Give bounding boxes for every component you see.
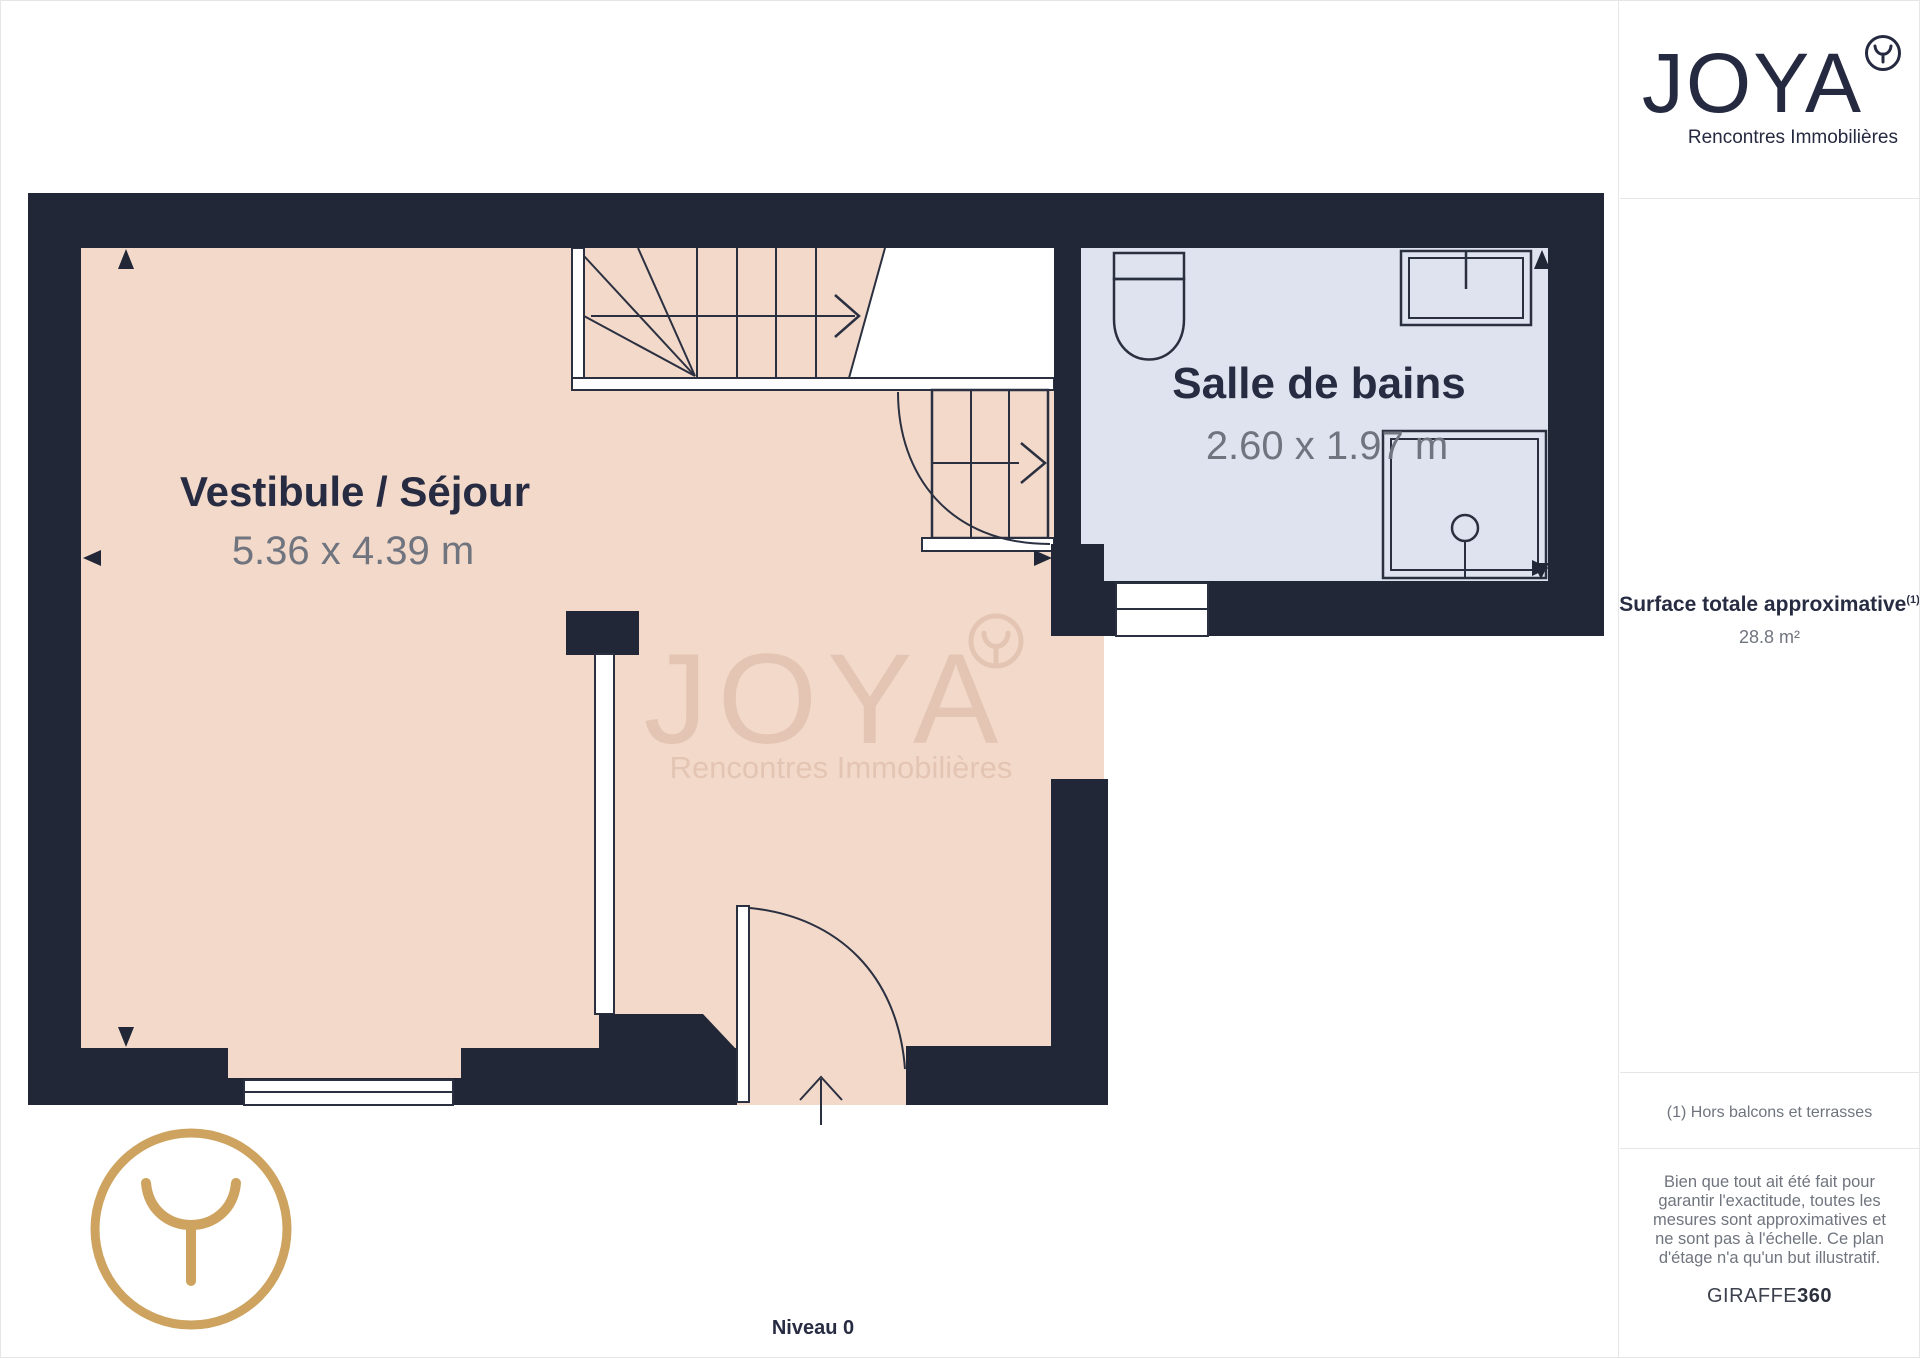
brand-tagline: Rencontres Immobilières: [1619, 127, 1920, 149]
footnote-section: (1) Hors balcons et terrasses: [1619, 1075, 1920, 1151]
window-south: [244, 1080, 453, 1105]
floor-plan: JOYA Rencontres Immobilières: [1, 1, 1618, 1358]
credit-name: GIRAFFE: [1707, 1285, 1797, 1307]
surface-label: Surface totale approximative(1): [1619, 593, 1920, 617]
surface-footnote-ref: (1): [1906, 594, 1919, 606]
divider: [1620, 198, 1920, 199]
door-leaf: [737, 906, 749, 1102]
room-label-vestibule: Vestibule / Séjour: [180, 468, 530, 515]
room-dims-bathroom: 2.60 x 1.97 m: [1206, 424, 1448, 468]
divider: [1620, 1072, 1920, 1073]
brand-wordmark: JOYA: [1642, 41, 1897, 125]
brand-logo: JOYA Rencontres Immobilières: [1619, 41, 1920, 149]
page: JOYA Rencontres Immobilières: [0, 0, 1920, 1358]
disclaimer-text: Bien que tout ait été fait pour garantir…: [1645, 1173, 1894, 1268]
room-label-bathroom: Salle de bains: [1172, 359, 1465, 408]
watermark: JOYA Rencontres Immobilières: [644, 616, 1021, 785]
credit-suffix: 360: [1797, 1285, 1832, 1307]
brand-mark-icon: [1863, 33, 1903, 73]
gold-badge-icon: [95, 1133, 287, 1325]
footnote-text: (1) Hors balcons et terrasses: [1667, 1104, 1872, 1122]
disclaimer-section: Bien que tout ait été fait pour garantir…: [1619, 1173, 1920, 1308]
credit-line: GIRAFFE360: [1645, 1285, 1894, 1308]
surface-value: 28.8 m²: [1619, 627, 1920, 648]
room-dims-vestibule: 5.36 x 4.39 m: [232, 529, 474, 573]
brand-name: JOYA: [1642, 36, 1863, 130]
window-bathroom: [1116, 583, 1208, 636]
divider: [1620, 1148, 1920, 1149]
level-label: Niveau 0: [772, 1317, 854, 1339]
surface-section: Surface totale approximative(1) 28.8 m²: [1619, 593, 1920, 648]
sidebar: JOYA Rencontres Immobilières Surface tot…: [1618, 1, 1920, 1357]
watermark-tagline: Rencontres Immobilières: [670, 750, 1013, 785]
